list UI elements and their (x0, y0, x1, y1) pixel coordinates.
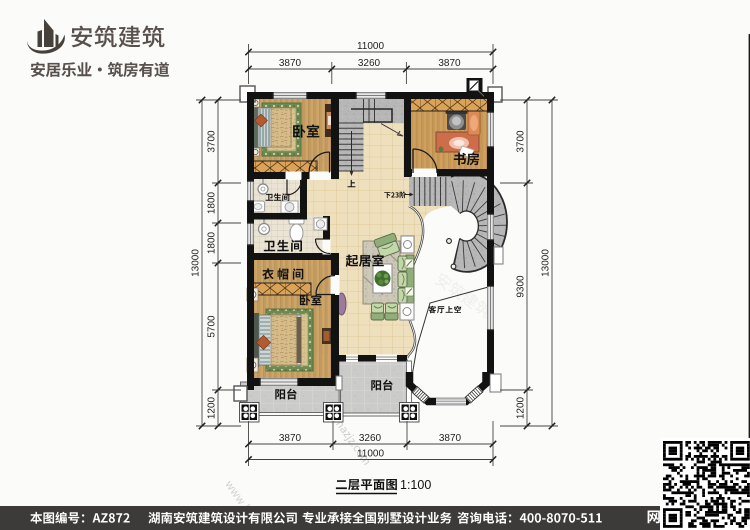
svg-text:1:100: 1:100 (400, 478, 431, 492)
svg-text:11000: 11000 (357, 449, 385, 460)
svg-text:11000: 11000 (357, 41, 385, 52)
svg-text:13000: 13000 (541, 249, 552, 277)
svg-text:3260: 3260 (358, 58, 381, 69)
svg-text:3870: 3870 (438, 58, 461, 69)
svg-text:3260: 3260 (359, 433, 382, 444)
svg-text:9300: 9300 (516, 275, 527, 298)
svg-text:1200: 1200 (207, 396, 218, 419)
svg-text:3870: 3870 (279, 433, 302, 444)
svg-text:5700: 5700 (207, 315, 218, 338)
svg-text:1800: 1800 (207, 231, 218, 254)
svg-text:1200: 1200 (516, 396, 527, 419)
svg-text:3700: 3700 (516, 130, 527, 153)
svg-text:3700: 3700 (207, 130, 218, 153)
svg-text:3870: 3870 (439, 433, 462, 444)
svg-text:3870: 3870 (279, 58, 302, 69)
svg-text:13000: 13000 (191, 249, 202, 277)
svg-text:1800: 1800 (207, 191, 218, 214)
